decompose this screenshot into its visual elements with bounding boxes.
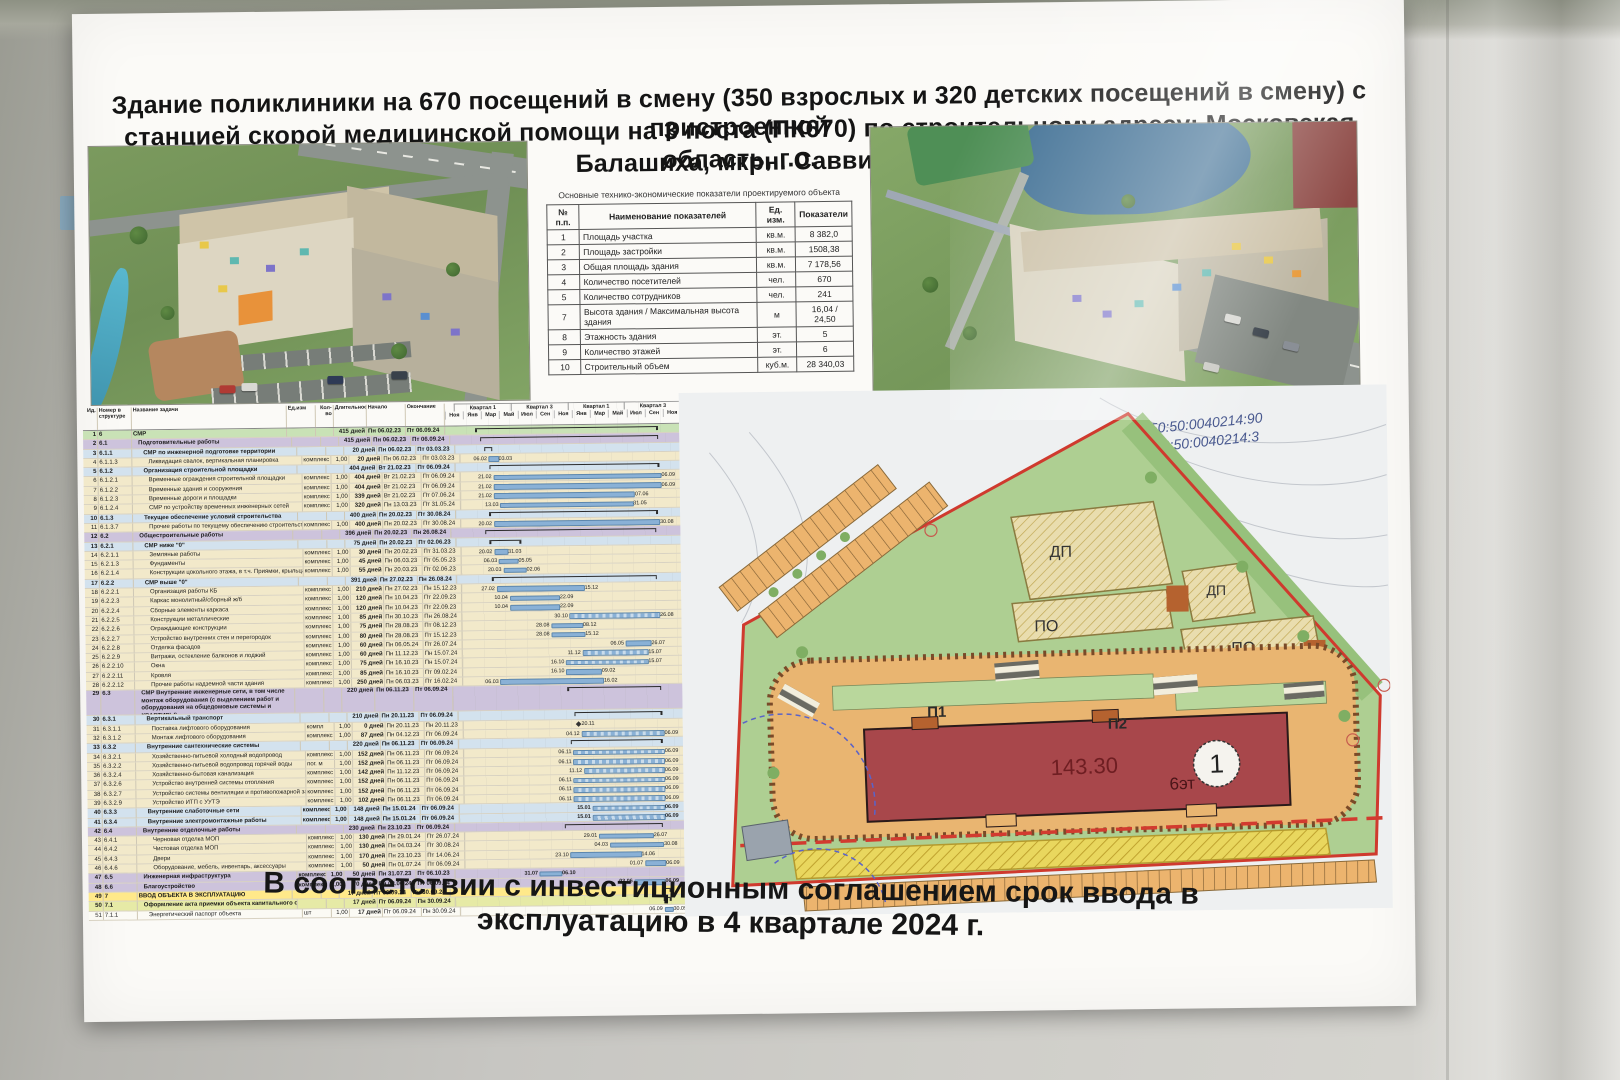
gantt-cell-qty: 1,00	[331, 815, 349, 824]
gantt-cell-dur: 30 дней	[350, 548, 383, 557]
gantt-task-bar	[500, 501, 633, 508]
gantt-cell-dur: 87 дней	[353, 731, 386, 740]
gantt-milestone-label: 20.11	[581, 720, 594, 728]
gantt-cell-id: 31	[87, 725, 102, 733]
indicators-cell: 4	[548, 274, 581, 289]
gantt-cell-id: 33	[87, 744, 102, 752]
gantt-cell-dur: 0 дней	[353, 722, 386, 731]
gantt-cell-unit	[299, 577, 328, 586]
gantt-task-bar	[610, 842, 665, 848]
gantt-cell-id: 40	[88, 809, 103, 817]
gantt-bar-end-label: 03.03	[499, 454, 513, 462]
tree	[129, 226, 147, 244]
residential-building	[1292, 120, 1361, 208]
gantt-cell-end: Пт 09.02.24	[424, 668, 463, 677]
building-floors-label: 6эт	[1169, 774, 1196, 794]
gantt-cell-dur: 170 дней	[354, 852, 387, 861]
gantt-cell-num: 6.1.3	[99, 514, 133, 523]
paving-connector	[1166, 585, 1188, 611]
gantt-cell-num: 6.1.3.7	[99, 523, 133, 532]
gantt-cell-num: 6.1.2.2	[99, 486, 133, 495]
gantt-col-header: Ид.	[83, 408, 98, 430]
gantt-cell-qty: 1,00	[336, 834, 354, 843]
gantt-rows: 16СМР415 днейПн 06.02.23Пт 06.09.2426.1П…	[83, 424, 687, 921]
gantt-cell-num: 6.2.2.4	[100, 607, 134, 616]
gantt-cell-id: 10	[84, 515, 99, 523]
gantt-bar-start-label: 06.03	[485, 678, 499, 686]
gantt-task-bar	[593, 814, 666, 820]
gantt-cell-start: Пн 06.11.23	[381, 740, 420, 749]
indicators-cell: кв.м.	[756, 242, 796, 257]
gantt-cell-start: Пн 10.04.23	[384, 594, 423, 603]
indicators-col-header: № п.п.	[547, 204, 580, 229]
gantt-bar-start-label: 28.08	[536, 621, 550, 629]
gantt-cell-num: 6.2.2.10	[101, 663, 135, 672]
gantt-col-header: Ед.изм	[287, 405, 316, 427]
entrance-portal-orange	[238, 290, 272, 325]
gantt-cell-unit: комплекс	[302, 816, 331, 825]
gantt-bar-end-label: 05.05	[518, 557, 532, 565]
gantt-summary-bar	[565, 823, 663, 828]
gantt-cell-id: 34	[87, 753, 102, 761]
gantt-cell-start: Пн 20.11.23	[386, 722, 425, 731]
gantt-cell-end: Пт 26.07.24	[424, 640, 463, 649]
gantt-cell-end: Пн 15.07.24	[424, 650, 463, 659]
gantt-cell-unit: комплекс	[306, 751, 335, 760]
gantt-cell-qty: 1,00	[332, 549, 350, 558]
gantt-cell-dur: 339 дней	[350, 492, 383, 501]
gantt-cell-dur: 148 дней	[349, 806, 382, 815]
gantt-cell-num: 6.3.2.7	[102, 790, 136, 799]
gantt-cell-dur: 85 дней	[351, 613, 384, 622]
indicators-cell: 3	[547, 259, 580, 274]
gantt-cell-unit: комплекс	[303, 521, 332, 530]
indicators-cell: 10	[549, 359, 582, 374]
gantt-cell-id: 36	[87, 772, 102, 780]
gantt-cell-end: Пт 31.03.23	[422, 547, 461, 556]
indicators-row: 7Высота здания / Максимальная высота зда…	[548, 301, 853, 330]
gantt-cell-num: 6.2.2.8	[101, 644, 135, 653]
sports-field	[906, 120, 1035, 186]
indicators-col-header: Наименование показателей	[579, 202, 756, 229]
gantt-summary-bar	[492, 575, 657, 581]
gantt-cell-dur: 102 дней	[353, 796, 386, 805]
gantt-cell-qty	[322, 530, 340, 539]
gantt-cell-start: Пн 13.03.23	[383, 501, 422, 510]
gantt-cell-start: Пн 29.01.24	[387, 833, 426, 842]
gantt-cell-qty: 1,00	[332, 493, 350, 502]
gantt-cell-id: 23	[85, 635, 100, 643]
gantt-cell-end: Пн 20.11.23	[425, 721, 464, 730]
gantt-cell-num: 6.4.3	[103, 855, 137, 864]
gantt-cell-unit: пог. м	[306, 760, 335, 769]
gantt-cell-unit	[297, 825, 326, 834]
gantt-cell-id: 29	[86, 691, 101, 715]
gantt-cell-start: Пн 06.02.23	[377, 446, 416, 455]
gantt-cell-num: 6.2	[99, 533, 133, 542]
gantt-cell-num: 6.1.2.3	[99, 496, 133, 505]
gantt-cell-num: 6.3.1	[101, 716, 135, 725]
gantt-cell-start: Пн 15.01.24	[382, 805, 421, 814]
gantt-timeline-header: Квартал 1Квартал 3Квартал 1Квартал 3НояЯ…	[445, 401, 681, 426]
gantt-bar-end-label: 16.02	[604, 676, 618, 684]
gantt-cell-id: 49	[89, 893, 104, 901]
gantt-cell-unit	[295, 688, 324, 712]
gantt-cell-end: Пт 06.09.24	[416, 464, 455, 473]
stream	[88, 266, 138, 406]
gantt-bar-start-label: 10.04	[494, 603, 508, 611]
gantt-month-label: Ноя	[445, 411, 463, 419]
gantt-col-header: Начало	[367, 404, 406, 426]
car	[241, 383, 257, 391]
gantt-cell-dur: 404 дней	[350, 474, 383, 483]
gantt-cell-id: 48	[89, 884, 104, 892]
gantt-cell-start: Пн 30.10.23	[384, 613, 423, 622]
gantt-cell-num: 7.1.1	[104, 911, 138, 920]
gantt-cell-end: Пт 31.05.24	[422, 501, 461, 510]
gantt-cell-unit: комплекс	[305, 660, 334, 669]
gantt-cell-qty: 1,00	[331, 456, 349, 465]
gantt-cell-num: 6.2.2.12	[101, 681, 135, 690]
gantt-cell-start: Пн 06.11.23	[375, 687, 414, 711]
gantt-cell-unit: комплекс	[304, 595, 333, 604]
gantt-cell-start: Пн 06.02.23	[382, 455, 421, 464]
gantt-cell-start: Пн 06.11.23	[386, 787, 425, 796]
label-po-1: ПО	[1034, 617, 1058, 635]
gantt-cell-num: 6.2.2.11	[101, 672, 135, 681]
gantt-cell-qty: 1,00	[332, 521, 350, 530]
gantt-summary-bar	[489, 463, 659, 469]
gantt-cell-num: 6.1	[98, 440, 132, 449]
gantt-task-bar	[494, 549, 508, 555]
gantt-cell-unit: комплекс	[304, 633, 333, 642]
indicators-cell: 9	[548, 344, 581, 359]
indicators-cell: 8 382,0	[795, 226, 852, 242]
gantt-bar-start-label: 04.03	[594, 841, 608, 849]
gantt-summary-bar	[571, 739, 663, 744]
gantt-cell-start: Пн 27.02.23	[384, 585, 423, 594]
gantt-task-bar	[489, 456, 499, 462]
gantt-cell-qty: 1,00	[332, 502, 350, 511]
gantt-cell-id: 50	[89, 902, 104, 910]
gantt-cell-unit: комплекс	[303, 493, 332, 502]
gantt-cell-num: 6.3.1.2	[102, 734, 136, 743]
gantt-col-header: Номер в структуре	[98, 407, 132, 429]
gantt-bar-start-label: 21.02	[478, 473, 492, 481]
gantt-cell-dur: 20 дней	[344, 446, 377, 455]
tree	[922, 277, 938, 293]
gantt-cell-start: Пн 20.02.23	[378, 511, 417, 520]
gantt-cell-num: 6.3.4	[103, 818, 137, 827]
gantt-cell-qty: 1,00	[335, 778, 353, 787]
gantt-cell-id: 26	[86, 663, 101, 671]
gantt-cell-num: 6.2.1	[99, 542, 133, 551]
gantt-cell-dur: 400 дней	[345, 511, 378, 520]
gantt-cell-unit: комплекс	[306, 788, 335, 797]
rendering-aerial-left	[88, 141, 531, 406]
gantt-task-bar	[573, 749, 665, 756]
gantt-cell-end: Пт 02.06.23	[423, 566, 462, 575]
gantt-cell-qty	[321, 437, 339, 446]
gantt-bar-end-label: 06.09	[665, 747, 679, 755]
gantt-col-header: Длительность	[334, 405, 367, 427]
gantt-cell-start: Пн 06.02.23	[367, 427, 406, 436]
gantt-task-bar	[499, 558, 519, 564]
gantt-cell-id: 24	[86, 645, 101, 653]
gantt-summary-bar	[490, 539, 521, 543]
gantt-bar-end-label: 06.09	[665, 775, 679, 783]
gantt-cell-start: Вт 21.02.23	[377, 464, 416, 473]
crosswalk	[994, 660, 1039, 682]
gantt-cell-end: Пт 05.05.23	[423, 557, 462, 566]
gantt-cell-dur: 220 дней	[342, 688, 375, 712]
gantt-cell-unit: комплекс	[303, 475, 332, 484]
gantt-cell-start: Пн 06.05.24	[385, 641, 424, 650]
tree	[963, 326, 977, 340]
gantt-cell-id: 22	[85, 626, 100, 634]
gantt-cell-id: 19	[85, 598, 100, 606]
gantt-cell-id: 47	[88, 874, 103, 882]
gantt-task-bar	[503, 567, 527, 573]
gantt-summary-bar	[574, 711, 662, 716]
gantt-bar-start-label: 06.03	[484, 557, 498, 565]
gantt-cell-end: Пн 26.08.24	[412, 529, 451, 538]
gantt-cell-unit: комплекс	[307, 853, 336, 862]
gantt-cell-end: Пт 02.06.23	[417, 538, 456, 547]
gantt-cell-qty: 1,00	[331, 806, 349, 815]
gantt-cell-qty	[327, 512, 345, 521]
gantt-cell-qty	[324, 688, 342, 712]
gantt-bar-start-label: 01.07	[630, 859, 644, 867]
gantt-cell-id: 6	[84, 477, 99, 485]
gantt-cell-start: Пн 06.03.23	[385, 678, 424, 687]
gantt-bar-end-label: 31.03	[508, 547, 522, 555]
gantt-cell-unit: комплекс	[305, 642, 334, 651]
gantt-cell-end: Пт 08.12.23	[423, 622, 462, 631]
gantt-cell-dur: 400 дней	[350, 520, 383, 529]
gantt-bar-end-label: 08.12	[583, 621, 597, 629]
gantt-cell-id: 32	[87, 735, 102, 743]
label-p2: П2	[1108, 716, 1127, 733]
indicators-cell: Высота здания / Максимальная высота здан…	[580, 302, 757, 329]
gantt-bar-area	[453, 684, 684, 711]
label-dp-2: ДП	[1206, 582, 1226, 598]
gantt-cell-num: 6.2.2.9	[101, 654, 135, 663]
gantt-cell-qty: 1,00	[334, 660, 352, 669]
gantt-task-bar	[581, 730, 664, 737]
gantt-cell-qty: 1,00	[334, 651, 352, 660]
gantt-cell-num: 6.1.2.1	[99, 477, 133, 486]
gantt-cell-qty	[326, 825, 344, 834]
indicators-table-title: Основные технико-экономические показател…	[546, 187, 852, 201]
car	[391, 371, 407, 379]
gantt-cell-end: Пт 22.09.23	[423, 603, 462, 612]
indicators-cell: кв.м.	[756, 257, 796, 272]
construction-schedule-gantt: Ид.Номер в структуреНазвание задачиЕд.из…	[83, 401, 687, 870]
gantt-cell-unit: комплекс	[305, 651, 334, 660]
gantt-cell-end: Пт 07.06.24	[422, 492, 461, 501]
gantt-task-bar	[645, 860, 667, 866]
gantt-bar-start-label: 06.05	[610, 639, 624, 647]
indicators-cell: 7	[548, 304, 581, 329]
indicators-cell: 16,04 / 24,50	[796, 301, 853, 327]
gantt-bar-start-label: 27.02	[481, 585, 495, 593]
gantt-cell-unit	[301, 741, 330, 750]
gantt-cell-qty: 1,00	[332, 484, 350, 493]
gantt-col-header: Окончание	[406, 404, 445, 426]
gantt-cell-id: 1	[83, 431, 98, 439]
indicators-cell: 6	[797, 341, 854, 357]
tree	[391, 343, 407, 359]
gantt-cell-qty: 1,00	[335, 787, 353, 796]
gantt-cell-unit: комплекс	[304, 558, 333, 567]
gantt-cell-num: 6.3.2.1	[102, 753, 136, 762]
gantt-bar-end-label: 26.08	[660, 611, 674, 619]
gantt-cell-num: 6.3.3	[103, 809, 137, 818]
tree	[1121, 194, 1135, 208]
gantt-bar-end-label: 15.07	[648, 657, 662, 665]
plastic-crease-line	[1446, 0, 1449, 1080]
indicators-cell: 2	[547, 244, 580, 259]
gantt-bar-start-label: 21.02	[478, 483, 492, 491]
gantt-cell-end: Пт 06.09.24	[425, 758, 464, 767]
gantt-cell-qty: 1,00	[333, 614, 351, 623]
gantt-bar-end-label: 06.09	[665, 728, 679, 736]
gantt-cell-start: Пн 20.02.23	[378, 539, 417, 548]
gantt-cell-end: Пт 06.09.24	[420, 740, 459, 749]
gantt-cell-unit	[297, 465, 326, 474]
gantt-cell-num: 6.1.2	[98, 468, 132, 477]
gantt-bar-end-label: 09.02	[602, 667, 616, 675]
gantt-cell-unit	[300, 713, 329, 722]
gantt-summary-bar	[567, 686, 661, 691]
wall-background-right	[1410, 0, 1620, 1080]
indicators-cell: 28 340,03	[797, 356, 854, 372]
gantt-cell-unit: комплекс	[302, 806, 331, 815]
gantt-task-bar	[551, 632, 585, 638]
gantt-cell-start: Пн 27.02.23	[379, 576, 418, 585]
gantt-cell-num: 6.6	[104, 883, 138, 892]
gantt-cell-unit: комплекс	[303, 549, 332, 558]
gantt-cell-qty	[327, 539, 345, 548]
gantt-cell-num: 6.1.1	[98, 449, 132, 458]
gantt-cell-id: 3	[83, 449, 98, 457]
gantt-task-bar	[566, 659, 649, 666]
gantt-bar-end-label: 22.09	[560, 602, 574, 610]
gantt-cell-start: Пн 20.11.23	[380, 712, 419, 721]
indicators-cell: 670	[796, 271, 853, 287]
gantt-summary-bar	[480, 435, 658, 441]
gantt-cell-unit: компл	[306, 723, 335, 732]
gantt-bar-start-label: 20.02	[479, 548, 493, 556]
gantt-cell-id: 42	[88, 828, 103, 836]
gantt-cell-dur: 60 дней	[352, 641, 385, 650]
gantt-cell-id: 45	[88, 856, 103, 864]
gantt-cell-num: 6.4.6	[103, 865, 137, 874]
gantt-cell-start: Пн 06.02.23	[372, 436, 411, 445]
gantt-bar-end-label: 06.09	[665, 766, 679, 774]
gantt-cell-dur: 210 дней	[351, 585, 384, 594]
gantt-cell-num: 6.2.2	[100, 579, 134, 588]
gantt-task-bar	[551, 623, 583, 629]
gantt-cell-id: 35	[87, 763, 102, 771]
gantt-cell-start: Пн 10.04.23	[384, 604, 423, 613]
gantt-bar-start-label: 06.11	[559, 776, 572, 784]
car	[327, 376, 343, 384]
gantt-task-bar	[573, 758, 665, 765]
gantt-cell-dur: 45 дней	[351, 558, 384, 567]
gantt-cell-dur: 55 дней	[351, 567, 384, 576]
gantt-month-label: Янв	[572, 410, 590, 418]
gantt-bar-end-label: 30.08	[664, 840, 678, 848]
gantt-cell-dur: 404 дней	[350, 483, 383, 492]
gantt-cell-dur: 230 дней	[344, 824, 377, 833]
gantt-bar-start-label: 20.03	[488, 566, 502, 574]
gantt-month-label: Сен	[536, 410, 554, 418]
gantt-task-bar	[510, 595, 561, 601]
gantt-cell-num: 6.5	[103, 874, 137, 883]
gantt-cell-num: 7	[104, 892, 138, 901]
gantt-cell-id: 14	[84, 552, 99, 560]
gantt-cell-qty: 1,00	[332, 474, 350, 483]
crosswalk	[1153, 674, 1198, 696]
gantt-cell-start: Пн 20.03.23	[384, 566, 423, 575]
gantt-cell-unit: комплекс	[304, 623, 333, 632]
gantt-cell-end: Пт 06.09.24	[425, 768, 464, 777]
gantt-cell-num: 7.1	[104, 902, 138, 911]
gantt-cell-qty	[329, 713, 347, 722]
gantt-cell-end: Пт 06.09.24	[425, 730, 464, 739]
gantt-cell-id: 9	[84, 505, 99, 513]
gantt-cell-qty: 1,00	[335, 732, 353, 741]
gantt-cell-dur: 415 дней	[339, 437, 372, 446]
gantt-cell-dur: 148 дней	[349, 815, 382, 824]
gantt-task-bar	[584, 767, 665, 774]
rendering-aerial-right	[869, 120, 1360, 412]
gantt-cell-end: Пт 06.09.24	[416, 823, 455, 832]
gantt-bar-end-label: 22.09	[560, 593, 574, 601]
gantt-cell-end: Пт 15.12.23	[423, 631, 462, 640]
gantt-cell-start: Вт 21.02.23	[383, 492, 422, 501]
commissioning-caption: В соответствии с инвестиционным соглашен…	[190, 866, 1271, 947]
gantt-cell-dur: 415 дней	[334, 428, 367, 437]
gantt-cell-dur: 80 дней	[351, 632, 384, 641]
gantt-task-bar	[574, 786, 666, 793]
gantt-bar-start-label: 10.04	[494, 594, 508, 602]
gantt-bar-end-label: 15.12	[585, 630, 599, 638]
gantt-cell-end: Пн 26.08.24	[418, 575, 457, 584]
gantt-cell-dur: 75 дней	[345, 539, 378, 548]
gantt-cell-id: 16	[85, 570, 100, 578]
indicators-cell: 7 178,56	[796, 256, 853, 272]
gantt-cell-dur: 152 дней	[353, 787, 386, 796]
gantt-cell-qty: 1,00	[333, 632, 351, 641]
gantt-summary-bar	[489, 510, 657, 516]
entrance-stub-3	[986, 814, 1017, 827]
gantt-cell-start: Вт 21.02.23	[383, 483, 422, 492]
gantt-cell-start: Пн 20.02.23	[373, 529, 412, 538]
label-p1: П1	[927, 704, 946, 721]
gantt-cell-start: Вт 21.02.23	[383, 473, 422, 482]
gantt-cell-unit: комплекс	[306, 769, 335, 778]
gantt-bar-start-label: 16.10	[551, 668, 565, 676]
gantt-cell-start: Пн 06.11.23	[386, 777, 425, 786]
gantt-cell-id: 15	[85, 561, 100, 569]
gantt-cell-start: Пн 11.12.23	[385, 650, 424, 659]
gantt-cell-id: 46	[88, 865, 103, 873]
gantt-cell-id: 18	[85, 589, 100, 597]
gantt-cell-num: 6.2.2.1	[100, 589, 134, 598]
